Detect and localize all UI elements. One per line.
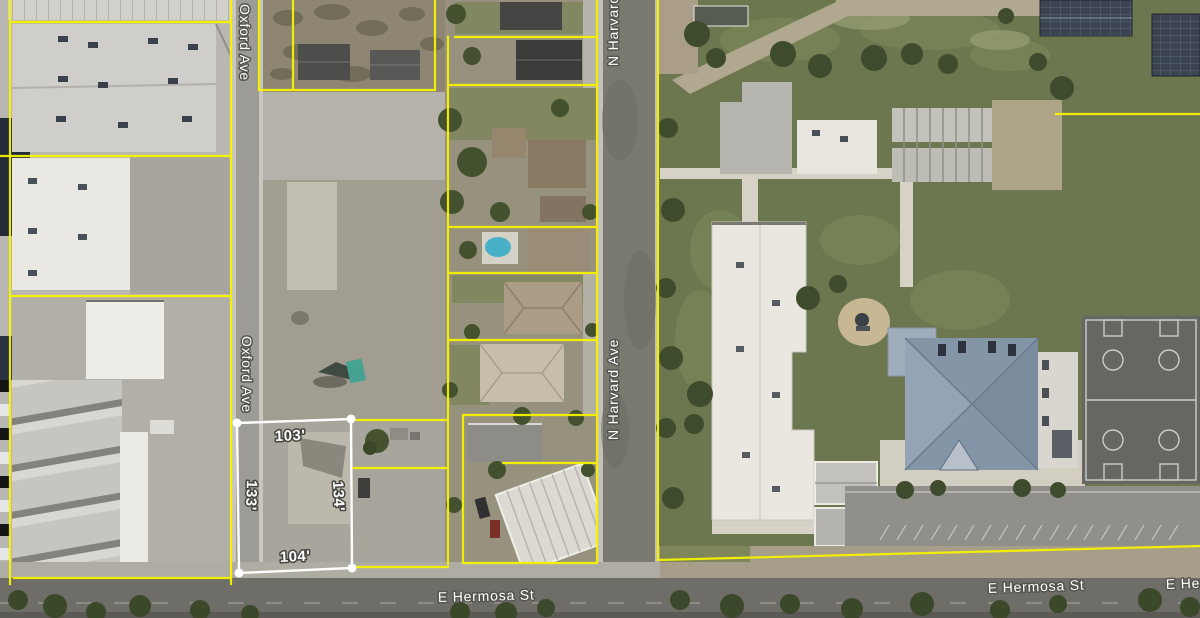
- house-roof: [528, 228, 590, 272]
- parcel-vertex[interactable]: [235, 569, 244, 578]
- vacant-lot-block: [263, 0, 455, 592]
- street-label-n-harvard-ave-mid: N Harvard Ave: [605, 339, 621, 440]
- solar-panel-array: [1152, 14, 1200, 76]
- street-label-oxford-ave-top: Oxford Ave: [237, 4, 253, 81]
- parcel-vertex[interactable]: [233, 419, 242, 428]
- map-viewport[interactable]: 103' 133' 134' 104' Oxford Ave Oxford Av…: [0, 0, 1200, 618]
- dimension-label-east: 134': [329, 480, 348, 511]
- parcel-vertex[interactable]: [347, 415, 356, 424]
- dimension-label-south: 104': [279, 548, 310, 566]
- street-label-n-harvard-ave-top: N Harvard Ave: [605, 0, 621, 66]
- street-label-e-hermosa-st-left: E Hermosa St: [438, 586, 535, 605]
- school-campus: [656, 0, 1200, 562]
- classroom-wing: [892, 148, 992, 182]
- gymnasium-blue-roof: [888, 328, 1038, 470]
- house-roof: [468, 424, 542, 462]
- sawtooth-warehouse-roof: [12, 380, 122, 576]
- house-roof: [528, 140, 586, 188]
- school-building: [797, 120, 877, 174]
- dimension-label-west: 133': [242, 480, 260, 511]
- classroom-wing: [892, 108, 992, 142]
- street-label-e-hermosa-st-right: E Hermosa St: [988, 577, 1085, 596]
- house-roof: [500, 2, 562, 30]
- parcel-vertex[interactable]: [348, 564, 357, 573]
- street-label-oxford-ave-mid: Oxford Ave: [239, 336, 255, 413]
- industrial-block-west: [0, 0, 232, 618]
- street-label-e-hermosa-st-far-right: E Hermosa St: [1166, 573, 1200, 592]
- swimming-pool: [485, 237, 511, 257]
- satellite-map: 103' 133' 134' 104' Oxford Ave Oxford Av…: [0, 0, 1200, 618]
- n-harvard-ave-road: [598, 0, 660, 618]
- basketball-courts: [1082, 316, 1200, 484]
- dimension-label-north: 103': [275, 427, 306, 445]
